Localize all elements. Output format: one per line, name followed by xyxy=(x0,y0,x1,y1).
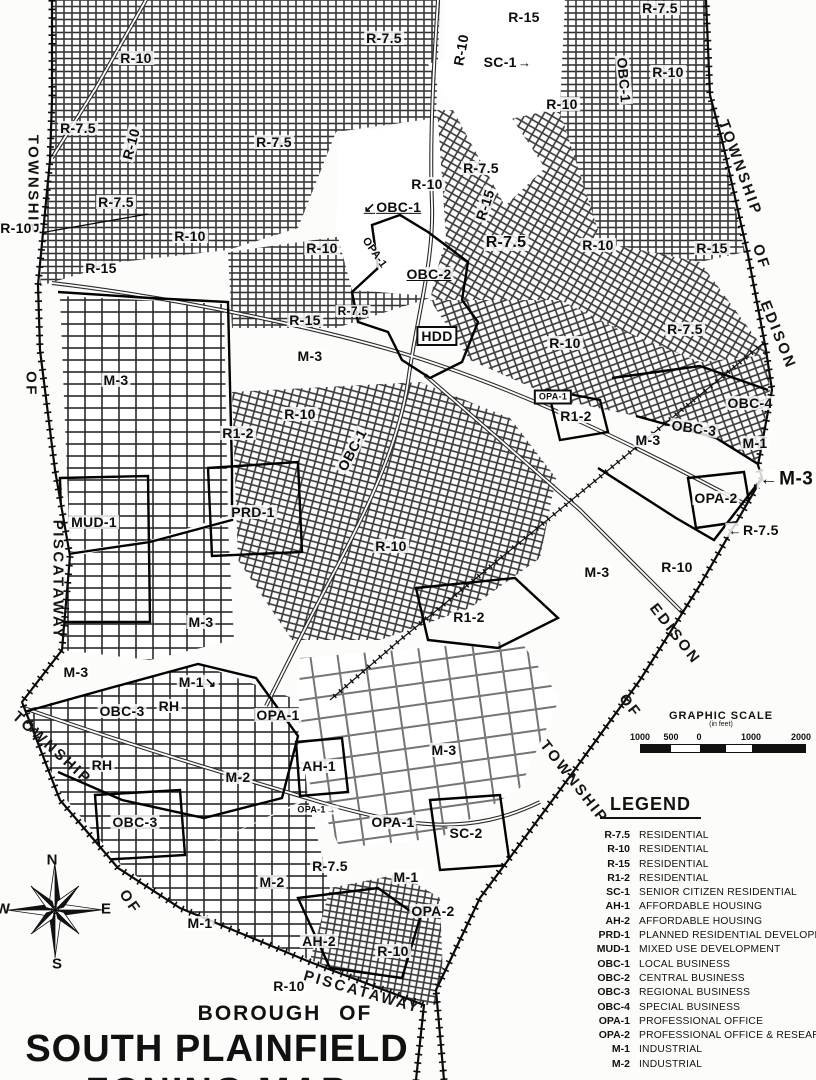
leader-arrow-icon: → xyxy=(517,55,533,70)
legend: LEGEND R-7.5RESIDENTIALR-10RESIDENTIALR-… xyxy=(582,794,816,1072)
map-title-line3: ZONING MAP xyxy=(86,1071,349,1080)
zone-label: AH-1 xyxy=(300,759,338,773)
zone-label: R-7.5 xyxy=(336,305,371,317)
graphic-scale-subtitle: (in feet) xyxy=(628,721,814,728)
legend-zone-desc: LOCAL BUSINESS xyxy=(639,959,730,970)
legend-row: MUD-1MIXED USE DEVELOPMENT xyxy=(582,943,816,957)
legend-row: R-10RESIDENTIAL xyxy=(582,843,816,857)
map-title-line1: BOROUGH OF xyxy=(198,1002,373,1026)
zone-label: R-15 xyxy=(694,241,730,255)
legend-zone-desc: REGIONAL BUSINESS xyxy=(639,987,750,998)
legend-row: M-1INDUSTRIAL xyxy=(582,1043,816,1057)
legend-zone-desc: SPECIAL BUSINESS xyxy=(639,1002,740,1013)
zone-label: R-7.5 xyxy=(310,859,350,873)
zone-label: M-2 xyxy=(223,770,252,784)
zone-label: PISCATAWAY xyxy=(51,518,66,643)
zone-label: M-3 xyxy=(582,565,611,579)
zone-label: R-10 xyxy=(544,97,580,111)
legend-row: OBC-3REGIONAL BUSINESS xyxy=(582,986,816,1000)
legend-row: OPA-2PROFESSIONAL OFFICE & RESEARCH xyxy=(582,1029,816,1043)
legend-zone-desc: MIXED USE DEVELOPMENT xyxy=(639,944,781,955)
legend-title: LEGEND xyxy=(600,794,701,819)
zone-label: OBC-3 xyxy=(110,815,159,829)
zone-label: OBC-3 xyxy=(97,704,146,718)
zone-label: R-10 xyxy=(282,407,318,421)
legend-row: SC-1SENIOR CITIZEN RESIDENTIAL xyxy=(582,886,816,900)
zone-label: R-15 xyxy=(506,10,542,24)
zone-label: ←R-7.5 xyxy=(725,523,780,537)
leader-arrow-icon: → xyxy=(326,805,337,815)
zone-label: OPA-1 xyxy=(369,815,416,829)
zone-label: OBC-4 xyxy=(725,396,774,410)
legend-row: AH-2AFFORDABLE HOUSING xyxy=(582,915,816,929)
legend-zone-code: OPA-2 xyxy=(582,1029,630,1041)
zone-label: R-10 xyxy=(375,944,411,958)
compass-west-label: W xyxy=(0,901,10,918)
legend-row: R1-2RESIDENTIAL xyxy=(582,872,816,886)
leader-arrow-icon: ← xyxy=(727,523,743,538)
zone-label: R-10 xyxy=(172,229,208,243)
legend-zone-code: OPA-1 xyxy=(582,1015,630,1027)
zone-label: R-7.5 xyxy=(484,235,529,251)
compass-south-label: S xyxy=(52,956,62,973)
legend-zone-desc: AFFORDABLE HOUSING xyxy=(639,901,762,912)
zone-label: R-7.5 xyxy=(96,195,136,209)
zone-label: M-1↘ xyxy=(177,675,219,689)
legend-zone-code: M-1 xyxy=(582,1043,630,1055)
legend-zone-code: OBC-2 xyxy=(582,972,630,984)
leader-arrow-icon: ← xyxy=(759,469,780,489)
zone-label: OPA-2 xyxy=(409,904,456,918)
zone-label: M-1 xyxy=(740,436,769,450)
legend-zone-code: R-15 xyxy=(582,858,630,870)
legend-zone-desc: INDUSTRIAL xyxy=(639,1059,702,1070)
legend-row: AH-1AFFORDABLE HOUSING xyxy=(582,900,816,914)
legend-zone-desc: PLANNED RESIDENTIAL DEVELOPMENT xyxy=(639,930,816,941)
zone-label: R-10 xyxy=(373,539,409,553)
zone-label: OPA-1→ xyxy=(295,806,338,815)
compass-east-label: E xyxy=(101,901,111,918)
zone-label: PRD-1 xyxy=(229,505,277,519)
legend-rows: R-7.5RESIDENTIALR-10RESIDENTIALR-15RESID… xyxy=(582,829,816,1072)
zone-label: SC-1→ xyxy=(482,55,535,69)
zone-label: M-2 xyxy=(257,875,286,889)
legend-zone-desc: RESIDENTIAL xyxy=(639,830,709,841)
legend-zone-code: MUD-1 xyxy=(582,943,630,955)
zone-label: OPA-2 xyxy=(692,491,739,505)
legend-zone-code: R-10 xyxy=(582,843,630,855)
legend-zone-desc: AFFORDABLE HOUSING xyxy=(639,916,762,927)
zone-label: R-10 xyxy=(659,560,695,574)
legend-zone-code: R1-2 xyxy=(582,872,630,884)
zone-label: M-1 xyxy=(185,916,214,930)
zone-label: RH xyxy=(157,699,182,713)
zone-label: M-3 xyxy=(101,373,130,387)
leader-arrow-icon: ↙ xyxy=(363,200,376,215)
legend-row: OPA-1PROFESSIONAL OFFICE xyxy=(582,1015,816,1029)
zone-label: M-3 xyxy=(186,615,215,629)
zone-label: R-10 xyxy=(409,177,445,191)
legend-row: OBC-1LOCAL BUSINESS xyxy=(582,958,816,972)
zone-label: R-7.5 xyxy=(461,161,501,175)
legend-zone-code: PRD-1 xyxy=(582,929,630,941)
zone-label: R-7.5 xyxy=(665,322,705,336)
zone-label: R-10 xyxy=(0,221,34,235)
scale-tick-label: 0 xyxy=(696,732,701,742)
legend-row: OBC-2CENTRAL BUSINESS xyxy=(582,972,816,986)
zone-label: R-10 xyxy=(304,241,340,255)
legend-row: M-2INDUSTRIAL xyxy=(582,1058,816,1072)
zone-label: R-7.5 xyxy=(364,31,404,45)
legend-zone-desc: CENTRAL BUSINESS xyxy=(639,973,745,984)
zone-label: M-3 xyxy=(633,433,662,447)
zone-label: R1-2 xyxy=(558,409,594,423)
legend-zone-desc: RESIDENTIAL xyxy=(639,873,709,884)
legend-zone-code: AH-2 xyxy=(582,915,630,927)
scale-tick-label: 1000 xyxy=(630,732,650,742)
legend-zone-desc: RESIDENTIAL xyxy=(639,859,709,870)
legend-zone-code: R-7.5 xyxy=(582,829,630,841)
legend-row: PRD-1PLANNED RESIDENTIAL DEVELOPMENT xyxy=(582,929,816,943)
zone-label: M-1 xyxy=(391,870,420,884)
legend-zone-code: OBC-4 xyxy=(582,1001,630,1013)
map-title-line2: SOUTH PLAINFIELD xyxy=(25,1028,408,1071)
compass-north-label: N xyxy=(47,852,58,869)
legend-zone-desc: INDUSTRIAL xyxy=(639,1044,702,1055)
legend-zone-desc: SENIOR CITIZEN RESIDENTIAL xyxy=(639,887,797,898)
scale-tick-label: 1000 xyxy=(741,732,761,742)
zone-label: M-3 xyxy=(61,665,90,679)
legend-row: R-7.5RESIDENTIAL xyxy=(582,829,816,843)
zone-label: AH-2 xyxy=(300,934,338,948)
zone-label: R-10 xyxy=(118,51,154,65)
scale-tick-label: 2000 xyxy=(791,732,811,742)
leader-arrow-icon: ↘ xyxy=(204,675,217,690)
zone-label: M-3 xyxy=(429,743,458,757)
zone-label: R-10 xyxy=(650,65,686,79)
zone-label: RH xyxy=(90,758,115,772)
legend-row: R-15RESIDENTIAL xyxy=(582,858,816,872)
legend-zone-desc: PROFESSIONAL OFFICE xyxy=(639,1016,763,1027)
zone-label: OBC-2 xyxy=(404,267,453,281)
zone-label: R-15 xyxy=(287,313,323,327)
zone-label: R-15 xyxy=(83,261,119,275)
legend-zone-code: SC-1 xyxy=(582,886,630,898)
legend-zone-desc: RESIDENTIAL xyxy=(639,844,709,855)
zone-label: OPA-1 xyxy=(534,390,572,405)
zone-label: R-10 xyxy=(580,238,616,252)
zone-label: R-7.5 xyxy=(640,1,680,15)
legend-zone-code: AH-1 xyxy=(582,900,630,912)
zone-label: SC-2 xyxy=(447,826,484,840)
zone-label: ←M-3 xyxy=(757,470,816,489)
legend-zone-code: OBC-3 xyxy=(582,986,630,998)
legend-zone-code: M-2 xyxy=(582,1058,630,1070)
graphic-scale-bar xyxy=(640,744,806,753)
zone-label: R-10 xyxy=(547,336,583,350)
zone-label: OBC-1 xyxy=(615,55,633,105)
zone-label: MUD-1 xyxy=(69,515,119,529)
zone-label: R-7.5 xyxy=(254,135,294,149)
zone-label: R-7.5 xyxy=(58,121,98,135)
legend-row: OBC-4SPECIAL BUSINESS xyxy=(582,1001,816,1015)
scale-tick-label: 500 xyxy=(663,732,678,742)
zone-label: ↙OBC-1 xyxy=(361,200,424,214)
zone-label: OF xyxy=(24,369,39,399)
zone-label: R1-2 xyxy=(451,610,487,624)
legend-zone-code: OBC-1 xyxy=(582,958,630,970)
zone-label: OPA-1 xyxy=(254,708,301,722)
legend-zone-desc: PROFESSIONAL OFFICE & RESEARCH xyxy=(639,1030,816,1041)
graphic-scale: GRAPHIC SCALE (in feet) 1000500010002000 xyxy=(628,710,814,758)
compass-rose-icon xyxy=(7,862,103,958)
zone-label: HDD xyxy=(416,326,457,346)
zone-label: M-3 xyxy=(295,349,324,363)
zone-label: R1-2 xyxy=(220,426,256,440)
zoning-map-page: R-15R-7.5R-10SC-1→R-7.5R-10OBC-1R-10R-10… xyxy=(0,0,816,1080)
